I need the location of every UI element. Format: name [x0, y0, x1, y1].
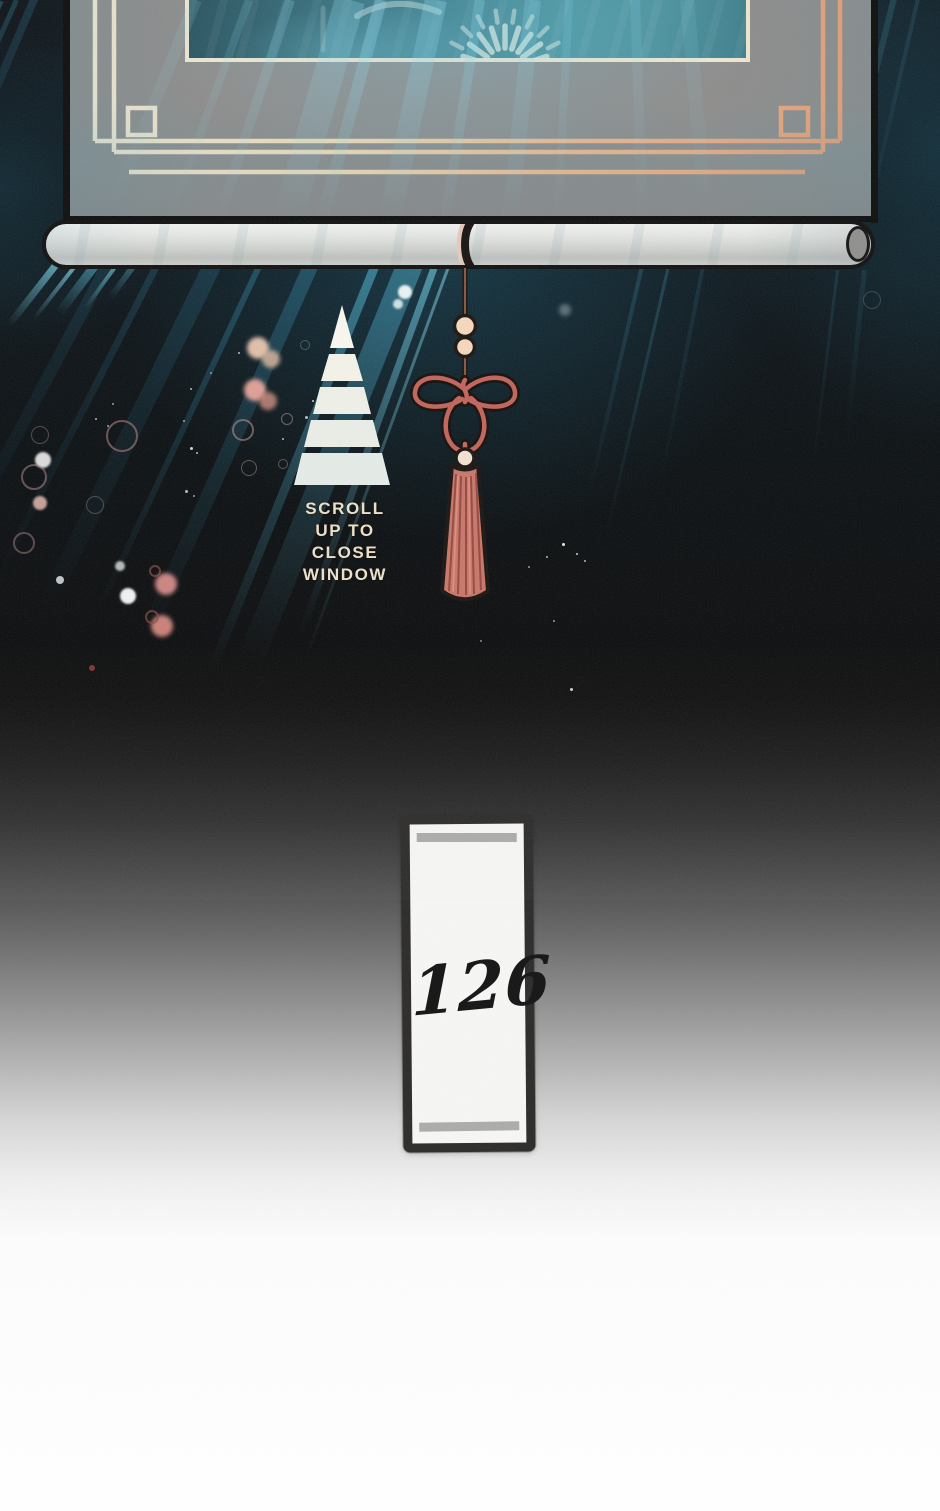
blind-right-edge: [871, 0, 878, 223]
blind-roller: [42, 220, 875, 269]
hint-line-1: SCROLL: [268, 498, 422, 520]
hint-line-3: CLOSE: [268, 542, 422, 564]
roller-end-cap: [846, 226, 870, 262]
roller-cord-wrap: [454, 224, 480, 265]
scroll-up-arrow-icon: [294, 303, 394, 487]
scroll-hint-text: SCROLL UP TO CLOSE WINDOW: [268, 498, 422, 586]
tassel-collar-bead: [456, 449, 474, 467]
chapter-number-tag: 126: [401, 814, 536, 1152]
tassel-knot: [415, 378, 515, 456]
fabric-haze: [70, 0, 871, 218]
hint-line-2: UP TO: [268, 520, 422, 542]
blind-left-edge: [63, 0, 70, 223]
chapter-number: 126: [411, 943, 525, 1032]
tag-bottom-bar: [419, 1121, 519, 1132]
webtoon-page: SCROLL UP TO CLOSE WINDOW 126: [0, 0, 940, 1511]
tag-top-bar: [417, 833, 517, 842]
tassel-beads: [455, 316, 476, 357]
tassel-skirt: [442, 465, 488, 599]
blind-fabric: [70, 0, 871, 218]
hint-line-4: WINDOW: [268, 564, 422, 586]
